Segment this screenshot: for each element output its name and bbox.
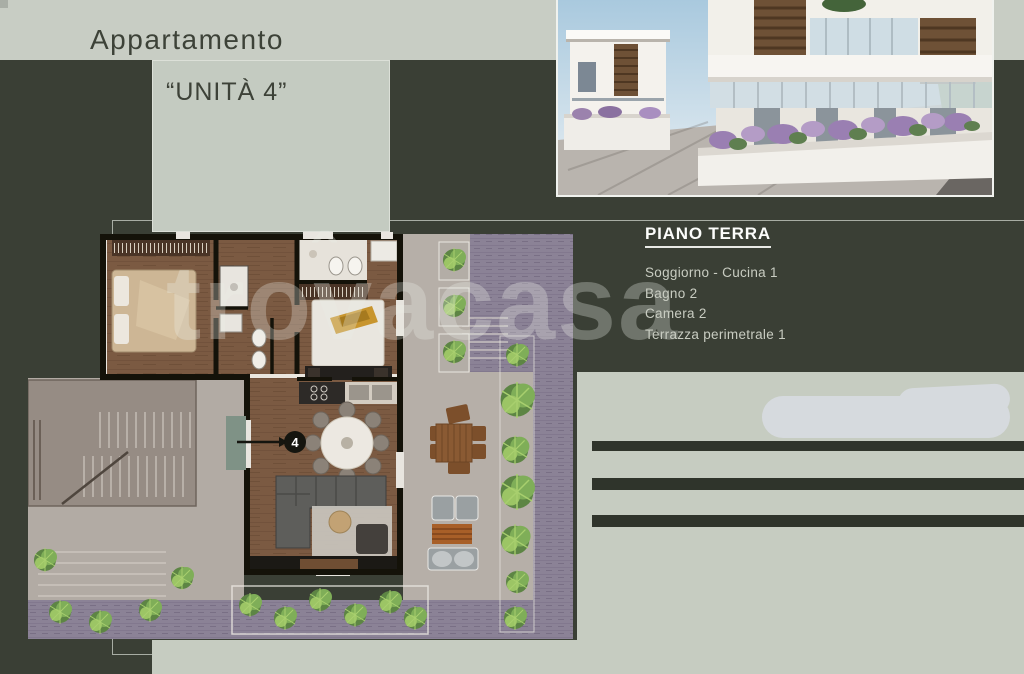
bottom-strip	[152, 640, 1024, 674]
photo-left-villa	[564, 30, 670, 150]
redacted-bar	[592, 441, 1024, 451]
pouf	[329, 511, 351, 533]
unit-number: 4	[291, 435, 299, 450]
room-item: Camera 2	[645, 306, 786, 321]
floor-plan: 4	[28, 232, 573, 639]
kitchen	[299, 382, 397, 404]
building-render-art	[558, 0, 992, 195]
terrace	[28, 378, 244, 639]
unit-badge: 4	[284, 431, 306, 453]
room-list: Soggiorno - Cucina 1 Bagno 2 Camera 2 Te…	[645, 265, 786, 342]
corner-notch	[0, 0, 8, 8]
unit-label: “UNITÀ 4”	[153, 61, 389, 107]
erased-text-blob	[897, 383, 1010, 419]
brochure-page: Appartamento “UNITÀ 4”	[0, 0, 1024, 674]
outdoor-lounge	[428, 496, 478, 570]
room-item: Soggiorno - Cucina 1	[645, 265, 786, 280]
redacted-bar	[592, 478, 1024, 490]
room-item: Terrazza perimetrale 1	[645, 327, 786, 342]
floor-plan-art: 4	[28, 232, 573, 639]
floor-info: PIANO TERRA Soggiorno - Cucina 1 Bagno 2…	[645, 224, 786, 347]
page-title: Appartamento	[90, 24, 284, 56]
bedroom-2	[305, 300, 392, 380]
floor-heading: PIANO TERRA	[645, 224, 771, 248]
redacted-bar	[592, 515, 1024, 527]
armchair	[356, 524, 388, 554]
unit-box: “UNITÀ 4”	[152, 60, 390, 232]
building-render-photo	[556, 0, 994, 197]
room-item: Bagno 2	[645, 286, 786, 301]
